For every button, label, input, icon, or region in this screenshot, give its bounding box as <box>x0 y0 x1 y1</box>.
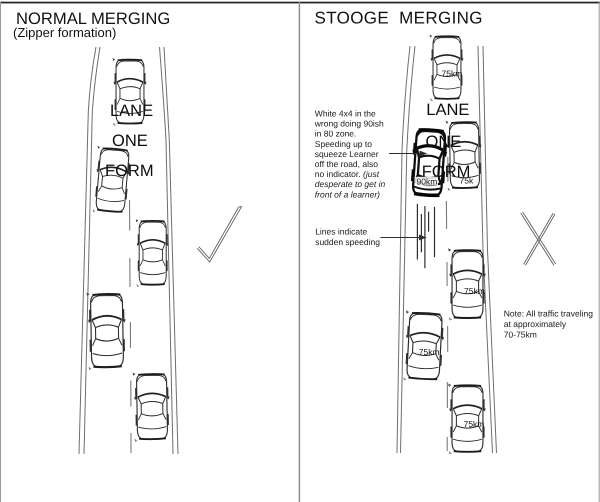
svg-text:ONE: ONE <box>112 132 148 150</box>
svg-text:at approximately: at approximately <box>504 319 567 329</box>
svg-text:White 4x4 in the: White 4x4 in the <box>315 109 376 119</box>
svg-text:Lines indicate: Lines indicate <box>315 227 367 237</box>
svg-text:no indicator. (just: no indicator. (just <box>315 169 380 179</box>
svg-text:wrong doing 90ish: wrong doing 90ish <box>314 119 384 129</box>
svg-text:75km: 75km <box>419 347 440 357</box>
svg-text:LANE: LANE <box>426 101 469 119</box>
svg-text:in 80 zone.: in 80 zone. <box>315 129 357 139</box>
svg-text:LANE: LANE <box>110 102 153 120</box>
svg-text:70-75km: 70-75km <box>504 329 537 339</box>
svg-text:75km: 75km <box>442 69 463 79</box>
svg-text:75km: 75km <box>464 419 485 429</box>
svg-text:desperate to get in: desperate to get in <box>315 179 386 189</box>
svg-text:off the road, also: off the road, also <box>315 159 378 169</box>
svg-text:front of a learner): front of a learner) <box>315 189 380 199</box>
svg-text:90km: 90km <box>417 177 438 187</box>
svg-text:squeeze Learner: squeeze Learner <box>315 149 379 159</box>
svg-text:STOOGE MERGING: STOOGE MERGING <box>315 9 483 28</box>
svg-text:sudden speeding: sudden speeding <box>315 237 380 247</box>
svg-text:Speeding up to: Speeding up to <box>315 139 372 149</box>
svg-text:FORM: FORM <box>105 162 154 180</box>
svg-text:Note: All traffic traveling: Note: All traffic traveling <box>504 309 593 319</box>
svg-text:75km: 75km <box>464 286 485 296</box>
svg-text:ONE: ONE <box>426 133 462 151</box>
svg-text:75k: 75k <box>460 176 474 186</box>
svg-text:(Zipper formation): (Zipper formation) <box>13 25 116 40</box>
